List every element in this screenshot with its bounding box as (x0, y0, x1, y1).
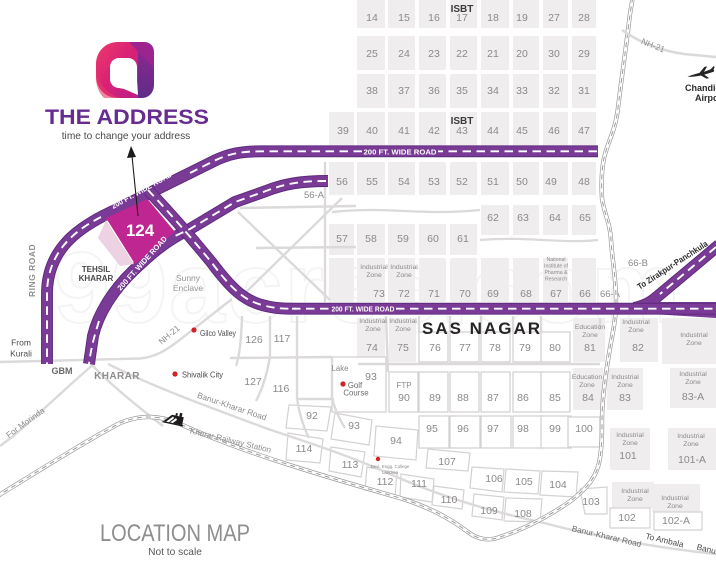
svg-text:14: 14 (366, 12, 378, 24)
svg-text:44: 44 (487, 125, 499, 137)
svg-text:36: 36 (428, 85, 440, 97)
svg-text:Research: Research (545, 277, 567, 283)
svg-text:95: 95 (426, 423, 438, 435)
svg-text:81: 81 (584, 342, 596, 354)
svg-text:Industrial: Industrial (360, 264, 388, 271)
svg-text:Industrial: Industrial (389, 318, 417, 325)
svg-text:Industrial: Industrial (680, 332, 708, 339)
svg-text:104: 104 (549, 479, 567, 491)
svg-text:126: 126 (245, 334, 263, 346)
svg-text:Pharma &: Pharma & (544, 270, 568, 276)
svg-text:56-A: 56-A (304, 190, 325, 201)
svg-text:92: 92 (306, 410, 318, 422)
svg-text:32: 32 (548, 85, 560, 97)
svg-text:113: 113 (342, 459, 359, 471)
svg-text:47: 47 (578, 125, 590, 137)
svg-text:KHARAR: KHARAR (94, 371, 140, 382)
svg-text:114: 114 (296, 443, 313, 455)
svg-text:39: 39 (337, 125, 349, 137)
svg-text:KHARAR: KHARAR (79, 274, 114, 283)
svg-text:83-A: 83-A (682, 391, 704, 403)
svg-text:89: 89 (429, 392, 441, 404)
svg-text:Industrial: Industrial (622, 319, 650, 326)
svg-text:60: 60 (427, 233, 439, 245)
svg-text:55: 55 (366, 176, 378, 188)
svg-text:Landran: Landran (382, 470, 399, 475)
svg-text:Industrial: Industrial (390, 264, 418, 271)
svg-text:Industrial: Industrial (679, 371, 707, 378)
svg-text:Shivalik City: Shivalik City (182, 371, 224, 380)
svg-text:19: 19 (516, 12, 528, 24)
svg-text:49: 49 (545, 176, 557, 188)
svg-text:41: 41 (398, 125, 410, 137)
svg-text:46: 46 (548, 125, 560, 137)
svg-text:50: 50 (516, 176, 528, 188)
svg-text:Airport: Airport (695, 93, 716, 103)
svg-text:Zone: Zone (395, 326, 411, 333)
svg-text:Zone: Zone (617, 382, 633, 389)
svg-text:83: 83 (619, 392, 631, 404)
svg-text:Enclave: Enclave (173, 283, 204, 293)
svg-text:117: 117 (274, 333, 291, 345)
svg-text:51: 51 (487, 176, 499, 188)
svg-text:Industrial: Industrial (621, 488, 649, 495)
svg-text:112: 112 (377, 476, 394, 488)
svg-text:Education: Education (572, 374, 602, 381)
svg-text:Zone: Zone (622, 440, 638, 447)
svg-text:24: 24 (398, 48, 410, 60)
svg-text:Not to scale: Not to scale (148, 547, 202, 558)
svg-text:16: 16 (428, 12, 440, 24)
svg-text:22: 22 (456, 48, 468, 60)
svg-text:Zone: Zone (396, 272, 412, 279)
svg-text:124: 124 (126, 221, 155, 240)
svg-text:LOCATION MAP: LOCATION MAP (100, 520, 250, 547)
svg-text:27: 27 (548, 12, 560, 24)
svg-text:Institute of: Institute of (544, 264, 568, 270)
svg-text:Kurali: Kurali (10, 349, 32, 359)
svg-text:34: 34 (487, 85, 499, 97)
svg-text:GBM: GBM (52, 366, 73, 376)
svg-text:Zone: Zone (366, 272, 382, 279)
svg-text:76: 76 (429, 342, 441, 354)
svg-text:30: 30 (548, 48, 560, 60)
svg-text:82: 82 (632, 342, 644, 354)
svg-text:106: 106 (485, 473, 503, 485)
svg-text:85: 85 (549, 392, 561, 404)
svg-text:56: 56 (336, 176, 348, 188)
svg-text:71: 71 (428, 288, 440, 300)
svg-text:65: 65 (579, 212, 591, 224)
svg-text:100: 100 (575, 423, 593, 435)
svg-text:77: 77 (459, 342, 471, 354)
svg-text:ISBT: ISBT (451, 116, 474, 127)
svg-text:time to change your address: time to change your address (62, 131, 191, 142)
svg-text:62: 62 (487, 212, 499, 224)
svg-text:109: 109 (480, 505, 498, 517)
svg-text:54: 54 (398, 176, 410, 188)
svg-text:SAS NAGAR: SAS NAGAR (422, 319, 542, 338)
svg-text:103: 103 (582, 496, 600, 508)
svg-text:Industrial: Industrial (616, 432, 644, 439)
svg-text:RING ROAD: RING ROAD (27, 244, 37, 297)
svg-text:87: 87 (487, 392, 499, 404)
svg-text:Gilco Valley: Gilco Valley (200, 329, 237, 338)
svg-text:102: 102 (618, 512, 636, 524)
svg-text:40: 40 (366, 125, 378, 137)
svg-text:66-B: 66-B (628, 258, 648, 269)
svg-text:107: 107 (438, 456, 456, 468)
svg-text:Industrial: Industrial (661, 495, 689, 502)
svg-text:FTP: FTP (396, 381, 411, 390)
svg-text:Course: Course (343, 389, 368, 398)
svg-text:78: 78 (489, 342, 501, 354)
svg-text:25: 25 (366, 48, 378, 60)
svg-text:37: 37 (398, 85, 410, 97)
svg-text:108: 108 (514, 508, 532, 520)
svg-text:Zone: Zone (683, 441, 699, 448)
svg-text:61: 61 (457, 233, 469, 245)
svg-text:86: 86 (517, 392, 529, 404)
svg-text:TEHSIL: TEHSIL (82, 265, 111, 274)
svg-text:99: 99 (549, 423, 561, 435)
svg-text:21: 21 (487, 48, 499, 60)
svg-text:97: 97 (487, 423, 499, 435)
svg-text:59: 59 (397, 233, 409, 245)
svg-text:Industrial: Industrial (359, 318, 387, 325)
svg-text:90: 90 (398, 392, 410, 404)
svg-text:38: 38 (366, 85, 378, 97)
svg-text:23: 23 (428, 48, 440, 60)
svg-text:101: 101 (619, 450, 637, 462)
svg-text:102-A: 102-A (662, 515, 690, 527)
svg-text:Chandigarh: Chandigarh (685, 83, 716, 93)
svg-text:96: 96 (457, 423, 469, 435)
svg-text:88: 88 (457, 392, 469, 404)
svg-text:18: 18 (487, 12, 499, 24)
svg-text:31: 31 (578, 85, 590, 97)
svg-text:116: 116 (273, 383, 290, 395)
svg-text:200 FT. WIDE ROAD: 200 FT. WIDE ROAD (332, 305, 395, 314)
svg-text:94: 94 (390, 435, 402, 447)
svg-text:Zone: Zone (667, 503, 683, 510)
svg-text:Industrial: Industrial (677, 433, 705, 440)
svg-text:Zone: Zone (685, 379, 701, 386)
svg-text:Zone: Zone (582, 332, 598, 339)
svg-text:48: 48 (578, 176, 590, 188)
svg-text:Zone: Zone (365, 326, 381, 333)
svg-text:98: 98 (517, 423, 529, 435)
svg-text:93: 93 (365, 371, 377, 383)
svg-text:80: 80 (549, 342, 561, 354)
svg-text:52: 52 (456, 176, 468, 188)
svg-text:Zone: Zone (686, 340, 702, 347)
svg-text:35: 35 (456, 85, 468, 97)
svg-text:THE ADDRESS: THE ADDRESS (45, 105, 209, 129)
svg-text:28: 28 (578, 12, 590, 24)
svg-text:72: 72 (398, 288, 410, 300)
svg-text:Education: Education (575, 324, 605, 331)
svg-text:84: 84 (582, 392, 594, 404)
svg-text:33: 33 (516, 85, 528, 97)
svg-text:63: 63 (517, 212, 529, 224)
svg-text:20: 20 (516, 48, 528, 60)
svg-text:45: 45 (516, 125, 528, 137)
svg-text:15: 15 (398, 12, 410, 24)
svg-text:67: 67 (550, 288, 562, 300)
svg-text:101-A: 101-A (678, 454, 706, 466)
svg-text:From: From (11, 338, 31, 348)
svg-text:ISBT: ISBT (451, 4, 474, 15)
svg-text:73: 73 (373, 288, 385, 300)
svg-text:29: 29 (578, 48, 590, 60)
svg-text:53: 53 (428, 176, 440, 188)
svg-text:Lake: Lake (332, 364, 349, 373)
svg-text:Zone: Zone (627, 496, 643, 503)
svg-text:58: 58 (365, 233, 377, 245)
svg-text:127: 127 (244, 376, 262, 388)
svg-text:Sunny: Sunny (176, 273, 201, 283)
svg-text:105: 105 (515, 476, 533, 488)
svg-text:79: 79 (519, 342, 531, 354)
svg-text:111: 111 (411, 478, 427, 490)
svg-text:200 FT. WIDE ROAD: 200 FT. WIDE ROAD (364, 147, 438, 156)
svg-text:74: 74 (366, 342, 378, 354)
svg-text:75: 75 (397, 342, 409, 354)
svg-text:70: 70 (459, 288, 471, 300)
svg-text:57: 57 (336, 233, 348, 245)
svg-text:69: 69 (487, 288, 499, 300)
svg-text:110: 110 (441, 494, 458, 506)
svg-text:Devi. Engg. College: Devi. Engg. College (371, 464, 410, 469)
svg-text:66: 66 (579, 288, 591, 300)
svg-text:National: National (546, 257, 565, 263)
svg-text:Industrial: Industrial (611, 374, 639, 381)
svg-text:Zone: Zone (579, 382, 595, 389)
svg-text:64: 64 (549, 212, 561, 224)
svg-text:Zone: Zone (628, 327, 644, 334)
svg-text:93: 93 (348, 420, 360, 432)
svg-text:42: 42 (428, 125, 440, 137)
svg-text:68: 68 (520, 288, 532, 300)
